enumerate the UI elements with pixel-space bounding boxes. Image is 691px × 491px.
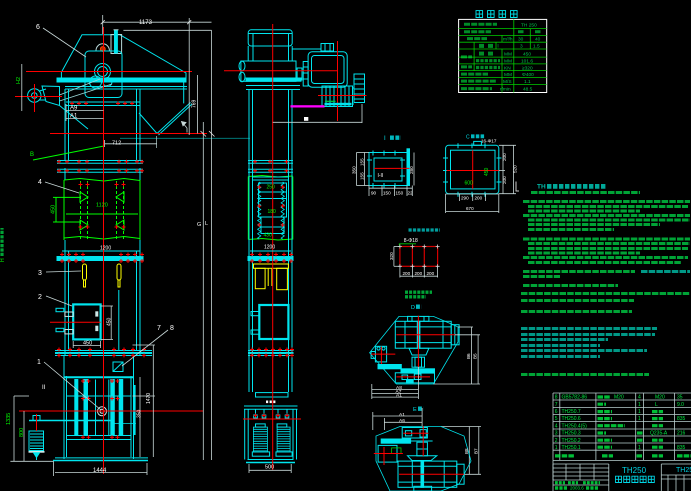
svg-text:m³/h: m³/h bbox=[503, 37, 513, 43]
svg-text:1335: 1335 bbox=[6, 413, 12, 425]
svg-text:6: 6 bbox=[36, 24, 40, 31]
svg-text:E: E bbox=[413, 407, 417, 413]
svg-text:450: 450 bbox=[523, 51, 531, 57]
svg-text:7: 7 bbox=[157, 325, 161, 332]
svg-text:1200: 1200 bbox=[100, 246, 111, 252]
svg-text:A9: A9 bbox=[70, 106, 78, 112]
svg-text:500: 500 bbox=[265, 465, 274, 471]
svg-text:180: 180 bbox=[268, 209, 277, 215]
svg-text:TH25: TH25 bbox=[676, 467, 691, 474]
svg-text:101.6: 101.6 bbox=[521, 59, 533, 65]
svg-text:1173: 1173 bbox=[139, 20, 153, 26]
svg-text:TH250.6: TH250.6 bbox=[562, 416, 581, 422]
svg-text:155: 155 bbox=[360, 158, 365, 166]
svg-text:B6: B6 bbox=[466, 353, 471, 359]
svg-text:TH250.4(5): TH250.4(5) bbox=[562, 423, 588, 429]
svg-text:200: 200 bbox=[427, 271, 435, 276]
svg-text:TH250.7: TH250.7 bbox=[562, 409, 581, 415]
svg-text:712: 712 bbox=[112, 140, 121, 146]
svg-text:7: 7 bbox=[555, 402, 558, 408]
svg-text:TH 250: TH 250 bbox=[521, 23, 537, 29]
svg-text:350: 350 bbox=[352, 166, 357, 174]
svg-text:C: C bbox=[466, 135, 470, 141]
svg-text:2003.6: 2003.6 bbox=[570, 486, 584, 491]
svg-text:8: 8 bbox=[170, 325, 174, 332]
svg-text:M20: M20 bbox=[614, 395, 624, 401]
svg-text:16-Φ17: 16-Φ17 bbox=[481, 139, 497, 144]
svg-text:9.0: 9.0 bbox=[677, 402, 684, 408]
svg-text:B8: B8 bbox=[464, 448, 469, 454]
svg-text:600: 600 bbox=[465, 181, 474, 187]
svg-text:1200: 1200 bbox=[264, 245, 275, 251]
svg-text:1: 1 bbox=[555, 445, 558, 451]
svg-text:II: II bbox=[42, 385, 46, 391]
svg-text:B: B bbox=[30, 152, 34, 158]
svg-text:670: 670 bbox=[466, 206, 474, 211]
svg-text:MM: MM bbox=[504, 72, 512, 78]
svg-text:8: 8 bbox=[555, 395, 558, 401]
svg-text:3: 3 bbox=[520, 44, 523, 50]
svg-text:155: 155 bbox=[360, 172, 365, 180]
svg-text:A1: A1 bbox=[70, 114, 78, 120]
svg-text:3: 3 bbox=[555, 431, 558, 437]
svg-text:B7: B7 bbox=[473, 448, 478, 454]
svg-text:MM: MM bbox=[504, 59, 512, 65]
svg-text:200: 200 bbox=[415, 271, 423, 276]
svg-text:M20: M20 bbox=[655, 395, 665, 401]
svg-text:450: 450 bbox=[106, 317, 112, 326]
svg-text:350: 350 bbox=[137, 409, 143, 418]
svg-text:L: L bbox=[655, 402, 658, 408]
svg-text:22: 22 bbox=[408, 191, 414, 196]
svg-text:TH250.3: TH250.3 bbox=[562, 431, 581, 437]
svg-text:216: 216 bbox=[677, 431, 686, 437]
svg-text:Φ400: Φ400 bbox=[522, 72, 534, 78]
svg-text:I-II: I-II bbox=[378, 173, 384, 179]
svg-text:200: 200 bbox=[502, 176, 507, 184]
svg-text:1.5: 1.5 bbox=[533, 44, 540, 50]
svg-text:3: 3 bbox=[38, 270, 42, 277]
svg-text:200: 200 bbox=[475, 196, 483, 201]
svg-text:1120: 1120 bbox=[96, 203, 108, 209]
svg-text:Q235-A: Q235-A bbox=[650, 431, 668, 437]
svg-text:A6: A6 bbox=[399, 418, 405, 424]
svg-text:A1: A1 bbox=[396, 393, 402, 399]
svg-text:800: 800 bbox=[19, 428, 25, 437]
svg-text:450: 450 bbox=[51, 205, 57, 214]
svg-text:GB5782-86: GB5782-86 bbox=[562, 395, 588, 401]
svg-text:MM: MM bbox=[504, 51, 512, 57]
svg-text:320: 320 bbox=[389, 252, 394, 260]
svg-text:A1: A1 bbox=[399, 412, 405, 418]
svg-text:835: 835 bbox=[677, 445, 686, 451]
svg-text:TH250: TH250 bbox=[622, 466, 647, 475]
svg-text:1: 1 bbox=[638, 409, 641, 415]
svg-text:2: 2 bbox=[38, 294, 42, 301]
svg-text:l: l bbox=[498, 44, 499, 50]
svg-text:1: 1 bbox=[638, 416, 641, 422]
svg-text:8-Φ18: 8-Φ18 bbox=[404, 238, 418, 244]
svg-text:1: 1 bbox=[37, 359, 41, 366]
svg-text:KN: KN bbox=[504, 65, 511, 71]
svg-text:G: G bbox=[197, 222, 201, 228]
svg-text:520: 520 bbox=[512, 165, 517, 173]
svg-text:150: 150 bbox=[396, 191, 404, 196]
svg-text:4: 4 bbox=[555, 423, 558, 429]
svg-text:90: 90 bbox=[371, 191, 377, 196]
svg-text:H: H bbox=[0, 258, 6, 262]
svg-text:450: 450 bbox=[83, 340, 92, 346]
svg-text:D: D bbox=[411, 305, 415, 311]
svg-text:L: L bbox=[205, 221, 208, 227]
svg-text:200: 200 bbox=[403, 271, 411, 276]
svg-text:H2: H2 bbox=[16, 77, 22, 84]
svg-text:TH: TH bbox=[537, 184, 546, 191]
svg-text:B5: B5 bbox=[473, 353, 478, 359]
svg-text:150: 150 bbox=[383, 191, 391, 196]
svg-text:35: 35 bbox=[677, 395, 683, 401]
svg-text:1.1: 1.1 bbox=[524, 79, 531, 85]
svg-text:430: 430 bbox=[264, 233, 273, 239]
svg-text:769: 769 bbox=[192, 99, 198, 108]
svg-text:r/min: r/min bbox=[500, 87, 511, 93]
svg-text:4: 4 bbox=[38, 179, 42, 186]
svg-text:M/S: M/S bbox=[503, 79, 512, 85]
svg-text:5: 5 bbox=[555, 416, 558, 422]
svg-text:1470: 1470 bbox=[146, 393, 152, 404]
svg-text:290: 290 bbox=[461, 196, 469, 201]
svg-text:835: 835 bbox=[677, 416, 686, 422]
svg-text:200: 200 bbox=[502, 153, 507, 161]
svg-text:TH250.1: TH250.1 bbox=[562, 445, 581, 451]
svg-text:30: 30 bbox=[518, 37, 524, 43]
svg-text:1444: 1444 bbox=[93, 468, 107, 474]
svg-text:48.5: 48.5 bbox=[523, 87, 533, 93]
svg-text:40: 40 bbox=[535, 37, 541, 43]
svg-text:1: 1 bbox=[638, 445, 641, 451]
svg-text:250: 250 bbox=[267, 185, 276, 191]
svg-text:1: 1 bbox=[638, 402, 641, 408]
svg-text:2: 2 bbox=[555, 438, 558, 444]
svg-text:TH250.2: TH250.2 bbox=[562, 438, 581, 444]
svg-text:6: 6 bbox=[555, 409, 558, 415]
svg-text:≥320: ≥320 bbox=[522, 65, 533, 71]
svg-text:280: 280 bbox=[409, 166, 414, 174]
svg-text:4: 4 bbox=[638, 395, 641, 401]
svg-text:450: 450 bbox=[484, 167, 490, 176]
